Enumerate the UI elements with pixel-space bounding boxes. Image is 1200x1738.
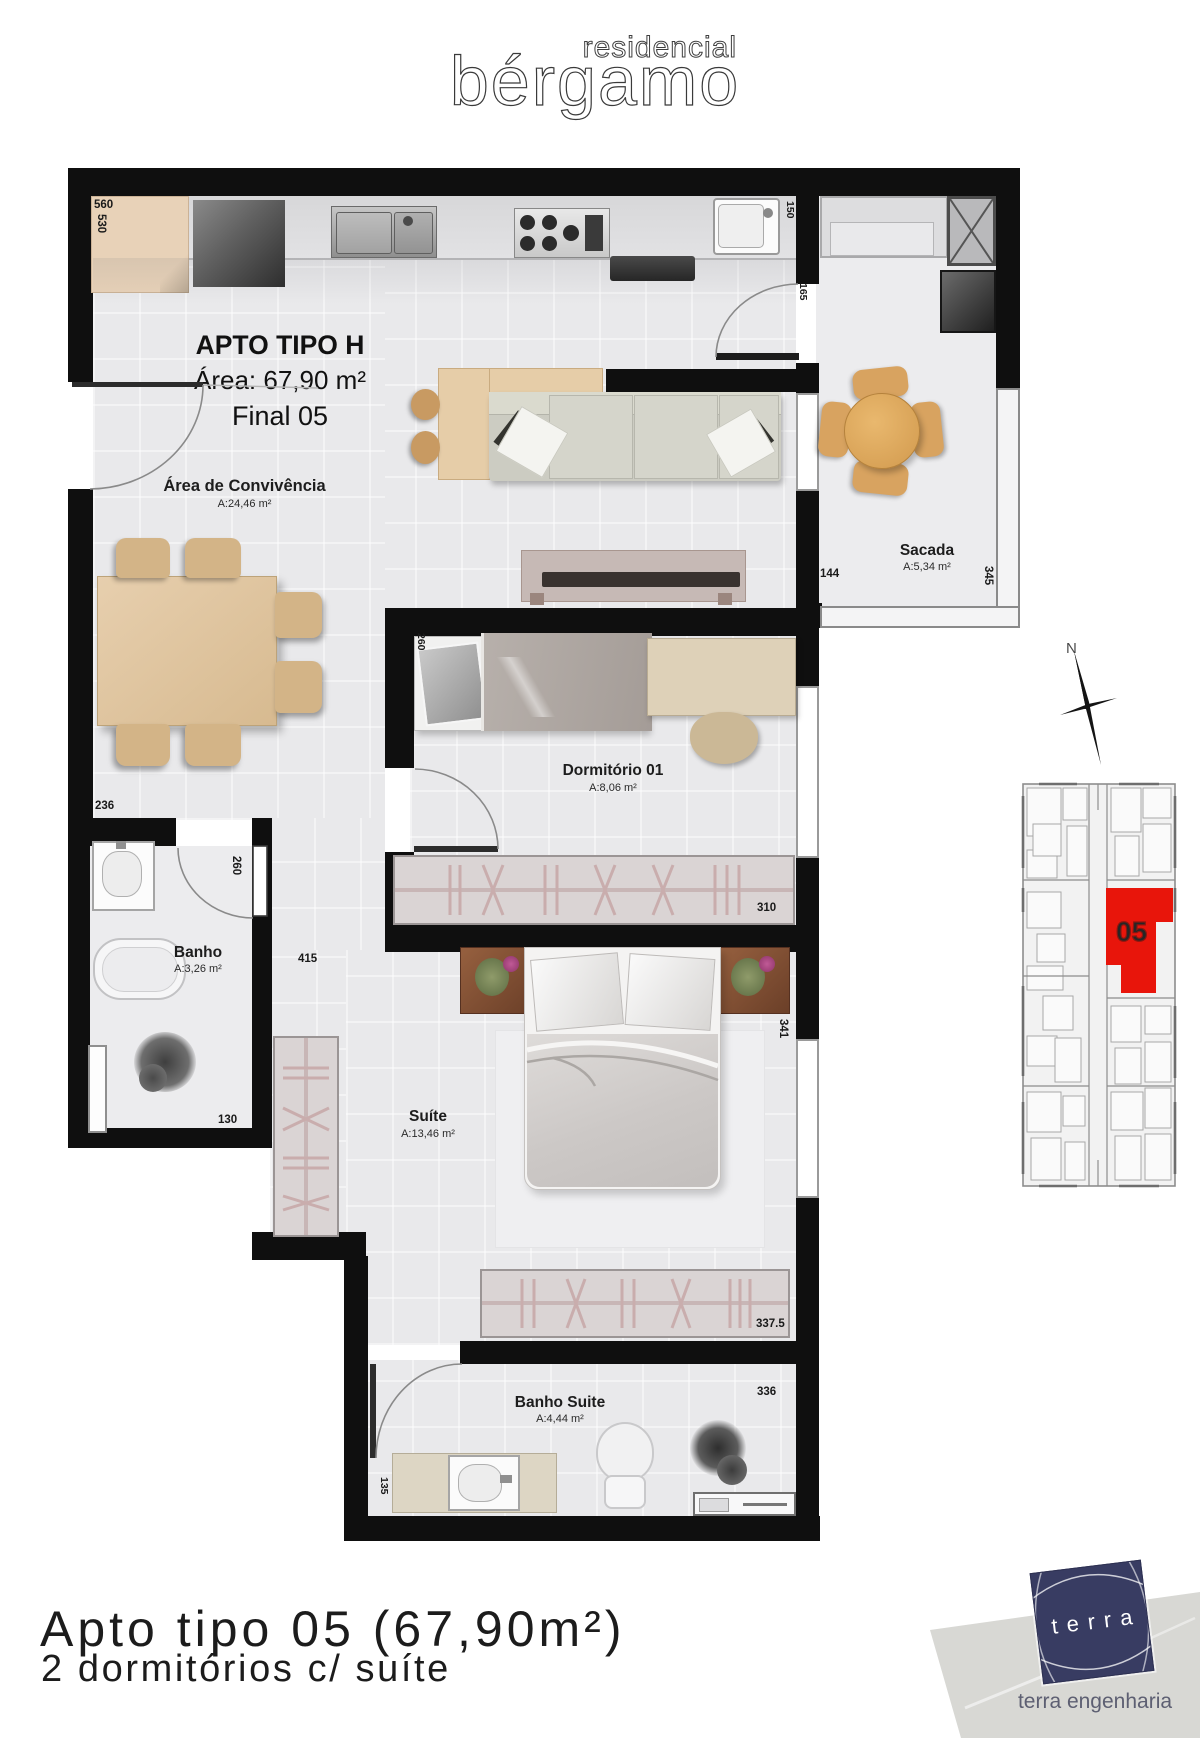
svg-text:N: N (1066, 640, 1077, 657)
svg-text:05: 05 (1116, 916, 1147, 947)
